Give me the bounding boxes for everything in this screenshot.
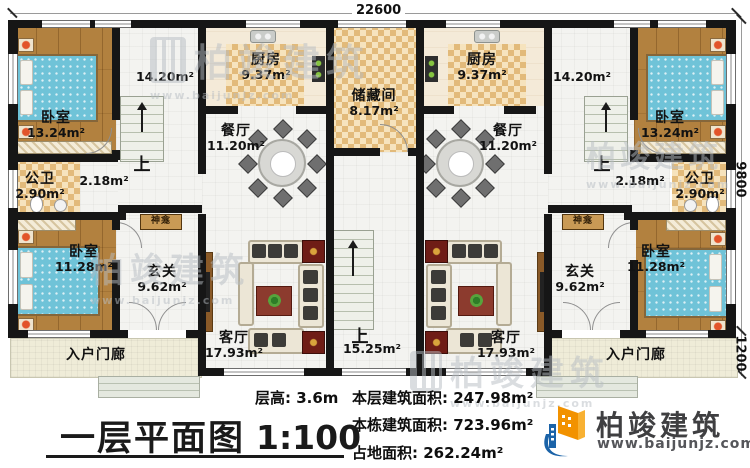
room-label-kitchen-right: 厨房9.37m² — [457, 52, 506, 82]
entry-door-opening — [128, 330, 186, 338]
floor-height-text: 层高: 3.6m — [255, 387, 338, 408]
entry-steps-left — [98, 376, 200, 398]
pillow — [711, 90, 724, 115]
dimension-width: 22600 — [352, 3, 405, 18]
room-label-hallway-right: 2.18m² — [615, 174, 664, 188]
up-label-right: 上 — [594, 150, 611, 175]
window — [646, 330, 708, 338]
stove — [425, 56, 438, 82]
wall — [326, 148, 380, 156]
window — [726, 54, 736, 104]
entry-steps-right — [536, 376, 638, 398]
wall — [504, 106, 536, 114]
wall — [206, 106, 238, 114]
room-label-bathroom-right: 公卫2.90m² — [675, 171, 724, 201]
brand-logo-icon — [538, 400, 590, 458]
room-label-storage: 储藏间8.17m² — [349, 88, 398, 118]
title-underline — [46, 455, 344, 458]
window — [446, 20, 500, 28]
wall — [118, 205, 202, 213]
rug — [302, 331, 325, 354]
stairs-arrow — [605, 104, 607, 132]
pillow — [20, 60, 33, 85]
wall — [630, 20, 638, 120]
chaise — [238, 262, 254, 326]
window — [726, 250, 736, 304]
nightstand — [710, 38, 726, 52]
room-label-foyer-right: 玄关9.62m² — [555, 264, 604, 294]
floor-area-text: 本层建筑面积: 247.98m² — [352, 387, 533, 408]
room-label-bedroom-rear-right: 卧室11.28m² — [627, 244, 685, 274]
wall — [624, 212, 736, 220]
room-label-dining-left: 餐厅11.20m² — [207, 123, 265, 153]
brand-url[interactable]: www.baijunjz.com — [597, 436, 750, 452]
shrine: 神龛 — [562, 214, 604, 230]
room-label-hallway-left: 2.18m² — [79, 174, 128, 188]
wall — [326, 20, 334, 368]
wall — [8, 212, 126, 220]
up-label-left: 上 — [134, 150, 151, 175]
pillow — [20, 252, 33, 278]
window — [8, 250, 18, 304]
pillow — [709, 286, 722, 312]
room-label-living-left: 客厅17.93m² — [205, 330, 263, 360]
rug — [302, 240, 325, 263]
nightstand — [710, 232, 726, 246]
dining-table — [258, 139, 306, 187]
shrine: 神龛 — [140, 214, 182, 230]
pillow — [20, 284, 33, 310]
rug — [425, 240, 448, 263]
wall — [112, 260, 120, 330]
stairs-arrow — [141, 104, 143, 132]
wall — [112, 20, 120, 120]
window — [342, 368, 406, 376]
room-label-bathroom-left: 公卫2.90m² — [15, 171, 64, 201]
dimension-porch: 1200 — [733, 332, 748, 376]
building-area-text: 本栋建筑面积: 723.96m² — [352, 414, 533, 435]
wall — [630, 220, 638, 230]
pillow — [711, 60, 724, 85]
floor-plan-canvas: 22600 9800 1200 — [0, 0, 750, 468]
wall — [416, 106, 454, 114]
wall — [8, 154, 118, 162]
wall — [544, 214, 552, 338]
room-label-stairhall-left: 14.20m² — [136, 70, 194, 84]
window — [224, 368, 304, 376]
entry-door-opening — [562, 330, 620, 338]
window — [95, 20, 131, 28]
nightstand — [18, 230, 34, 244]
page-title: 一层平面图 — [60, 410, 245, 461]
nightstand — [710, 125, 726, 139]
room-label-dining-right: 餐厅11.20m² — [479, 123, 537, 153]
window — [446, 368, 526, 376]
footprint-area-text: 占地面积: 262.24m² — [352, 442, 503, 463]
chaise — [496, 262, 512, 326]
wall — [198, 214, 206, 338]
window — [658, 20, 706, 28]
window — [246, 20, 300, 28]
room-label-porch-right: 入户门廊 — [606, 347, 666, 363]
room-label-bedroom-front-left: 卧室13.24m² — [27, 110, 85, 140]
window — [614, 20, 650, 28]
room-label-porch-left: 入户门廊 — [66, 347, 126, 363]
wall — [544, 20, 552, 174]
room-label-living-right: 客厅17.93m² — [477, 330, 535, 360]
kitchen-sink — [250, 30, 276, 43]
window — [8, 54, 18, 104]
pillow — [709, 254, 722, 280]
room-label-stairhall-right: 14.20m² — [553, 70, 611, 84]
window — [28, 330, 90, 338]
scale-text: 1:100 — [256, 418, 361, 457]
nightstand — [18, 38, 34, 52]
wall — [416, 20, 424, 368]
room-label-bedroom-rear-left: 卧室11.28m² — [55, 244, 113, 274]
dimension-height: 9800 — [733, 158, 748, 202]
wall — [548, 205, 632, 213]
window — [338, 20, 406, 28]
stairs-arrow — [352, 242, 354, 276]
dining-table — [436, 139, 484, 187]
room-label-kitchen-left: 厨房9.37m² — [241, 52, 290, 82]
rug — [425, 331, 448, 354]
room-label-foyer-left: 玄关9.62m² — [137, 264, 186, 294]
wall — [630, 154, 736, 162]
room-label-center-stairs: 15.25m² — [343, 342, 401, 356]
wall — [408, 148, 416, 156]
stove — [312, 56, 325, 82]
wall — [112, 220, 120, 230]
plant — [470, 294, 483, 307]
plant — [268, 294, 281, 307]
room-label-bedroom-front-right: 卧室13.24m² — [641, 110, 699, 140]
wall — [198, 20, 206, 174]
window — [42, 20, 90, 28]
kitchen-sink — [474, 30, 500, 43]
